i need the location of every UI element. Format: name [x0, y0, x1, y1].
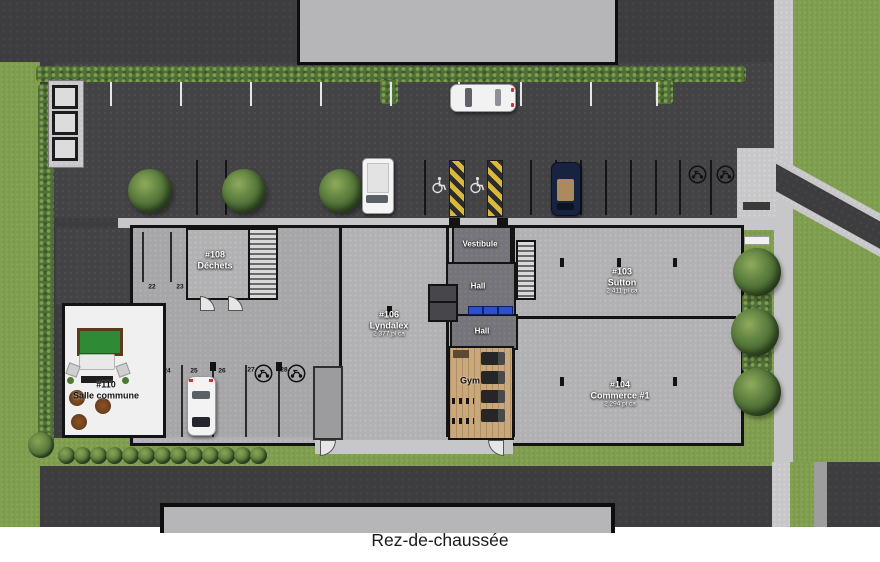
treadmill — [481, 390, 505, 403]
parking-line — [110, 82, 112, 106]
treadmill — [481, 371, 505, 384]
bush — [122, 447, 139, 464]
room-number: #110 — [73, 379, 139, 390]
bush — [234, 447, 251, 464]
tree — [733, 368, 781, 416]
dining-table — [71, 414, 87, 430]
car-taillight — [209, 379, 213, 382]
elevator-cab — [428, 301, 458, 322]
stairwell-north — [248, 228, 278, 300]
motorcycle-parking-icon — [688, 165, 707, 184]
stall-line — [605, 160, 607, 215]
bush — [218, 447, 235, 464]
room-area: 2 377 pi ca — [370, 331, 409, 339]
car-interior — [557, 179, 574, 201]
sidewalk-building-south — [315, 440, 513, 454]
accessible-hatch-strip — [487, 160, 503, 217]
pergola-frame — [52, 85, 78, 109]
treadmill — [481, 409, 505, 422]
room-name: Gym — [460, 376, 480, 387]
pool-table — [77, 328, 123, 356]
car-taillight — [189, 379, 193, 382]
mailboxes — [498, 306, 513, 315]
tree — [319, 169, 363, 213]
bush — [186, 447, 203, 464]
armchair — [65, 362, 80, 377]
room-label-dechets: #108 Déchets — [197, 249, 232, 270]
bush — [74, 447, 91, 464]
stall-line — [530, 160, 532, 215]
room-number: #103 — [606, 267, 637, 278]
column — [560, 258, 564, 267]
site-plan-ground-floor: 22 23 24 25 26 27 28 #106 Lyndalex 2 377… — [0, 0, 880, 562]
car-windshield — [557, 203, 574, 210]
room-label-vestibule: Vestibule — [462, 234, 497, 253]
corner-plaza-pad — [737, 148, 776, 220]
car-white-street — [450, 84, 516, 112]
room-name: Hall — [471, 282, 486, 291]
parking-line — [590, 82, 592, 106]
bush — [106, 447, 123, 464]
curb-bottom-right — [814, 462, 827, 527]
room-salle-commune — [62, 303, 166, 438]
hedge-clump — [380, 80, 398, 104]
sofa — [79, 354, 115, 370]
room-number: #106 — [370, 310, 409, 321]
car-rear-window — [495, 89, 501, 106]
wheelchair-icon — [431, 176, 447, 194]
parking-line — [390, 82, 392, 106]
garage-stall-line — [181, 365, 183, 437]
garage-stall-line — [170, 232, 172, 282]
garage-driveway — [56, 228, 130, 304]
gym-shelf — [453, 350, 469, 358]
grass-right-top — [793, 0, 880, 190]
column — [560, 377, 564, 386]
stall-line — [196, 160, 198, 215]
bench-white — [744, 236, 770, 245]
room-name: Déchets — [197, 260, 232, 271]
stall-number: 25 — [190, 368, 197, 375]
room-label-sutton: #103 Sutton 2 411 pi ca — [606, 267, 637, 296]
path-bottom-stripe — [772, 462, 790, 527]
garage-stall-line — [142, 232, 144, 282]
parking-line — [250, 82, 252, 106]
car-taillight — [511, 88, 514, 92]
stairwell-core — [516, 240, 536, 300]
bench — [743, 202, 770, 210]
stall-number: 26 — [218, 368, 225, 375]
motorcycle-parking-icon — [716, 165, 735, 184]
truck-white — [362, 158, 394, 214]
mailboxes — [468, 306, 483, 315]
car-taillight — [511, 103, 514, 107]
tree — [222, 169, 266, 213]
room-name: Commerce #1 — [590, 390, 649, 401]
bush — [58, 447, 75, 464]
bush — [170, 447, 187, 464]
wall-sutton-commerce — [515, 316, 736, 319]
neighbor-building-south — [160, 503, 615, 533]
room-gym — [448, 346, 514, 440]
car-navy-convertible — [551, 162, 581, 216]
plan-title: Rez-de-chaussée — [0, 530, 880, 551]
entry-planter — [449, 218, 460, 227]
car-windshield — [465, 88, 472, 107]
stall-number: 23 — [176, 284, 183, 291]
column — [673, 377, 677, 386]
stall-line — [679, 160, 681, 215]
stall-line — [710, 160, 712, 215]
stall-line — [630, 160, 632, 215]
garage-stall-line — [278, 365, 280, 437]
stall-number: 22 — [148, 284, 155, 291]
pergola-frame — [52, 137, 78, 161]
room-label-lyndalex: #106 Lyndalex 2 377 pi ca — [370, 310, 409, 339]
mailboxes — [483, 306, 498, 315]
pergola-pad — [48, 80, 84, 168]
tree — [731, 308, 779, 356]
tree — [733, 248, 781, 296]
bush — [154, 447, 171, 464]
neighbor-building-north — [297, 0, 618, 65]
room-number: #108 — [197, 249, 232, 260]
parking-line — [320, 82, 322, 106]
parking-line — [656, 82, 658, 106]
armchair — [115, 362, 130, 377]
garage-utility-box — [313, 366, 343, 440]
bush — [28, 432, 54, 458]
dumbbell-rack — [452, 398, 474, 404]
grass-bottom-right — [790, 462, 814, 527]
room-label-commerce: #104 Commerce #1 2 294 pi ca — [590, 380, 649, 409]
truck-bed — [367, 163, 389, 193]
truck-windshield — [366, 195, 388, 203]
room-label-hall-upper: Hall — [471, 276, 486, 295]
treadmill — [481, 352, 505, 365]
bush — [90, 447, 107, 464]
accessible-hatch-strip — [449, 160, 465, 217]
stall-line — [424, 160, 426, 215]
room-label-gym: Gym — [460, 376, 480, 387]
room-area: 2 294 pi ca — [590, 401, 649, 409]
stall-line — [655, 160, 657, 215]
car-rear-window — [192, 417, 210, 427]
garage-stall-line — [245, 365, 247, 437]
room-label-salle-commune: #110 Salle commune — [73, 379, 139, 400]
car-white-garage — [187, 376, 216, 436]
tree — [128, 169, 172, 213]
parking-line — [520, 82, 522, 106]
room-area: 2 411 pi ca — [606, 288, 637, 296]
column — [673, 258, 677, 267]
room-name: Salle commune — [73, 390, 139, 401]
bush — [138, 447, 155, 464]
motorcycle-stall-icon — [254, 364, 273, 383]
parking-line — [180, 82, 182, 106]
room-name: Vestibule — [462, 240, 497, 249]
pergola-frame — [52, 111, 78, 135]
dumbbell-rack — [452, 418, 474, 424]
wheelchair-icon — [469, 176, 485, 194]
room-number: #104 — [590, 380, 649, 391]
bush — [250, 447, 267, 464]
room-name: Sutton — [606, 277, 637, 288]
room-label-hall-lower: Hall — [475, 321, 490, 340]
room-name: Hall — [475, 327, 490, 336]
motorcycle-stall-icon — [287, 364, 306, 383]
grass-left-strip — [0, 62, 40, 527]
entry-planter — [497, 218, 508, 227]
room-name: Lyndalex — [370, 320, 409, 331]
car-windshield — [192, 391, 210, 399]
pillar — [210, 362, 216, 371]
bush — [202, 447, 219, 464]
